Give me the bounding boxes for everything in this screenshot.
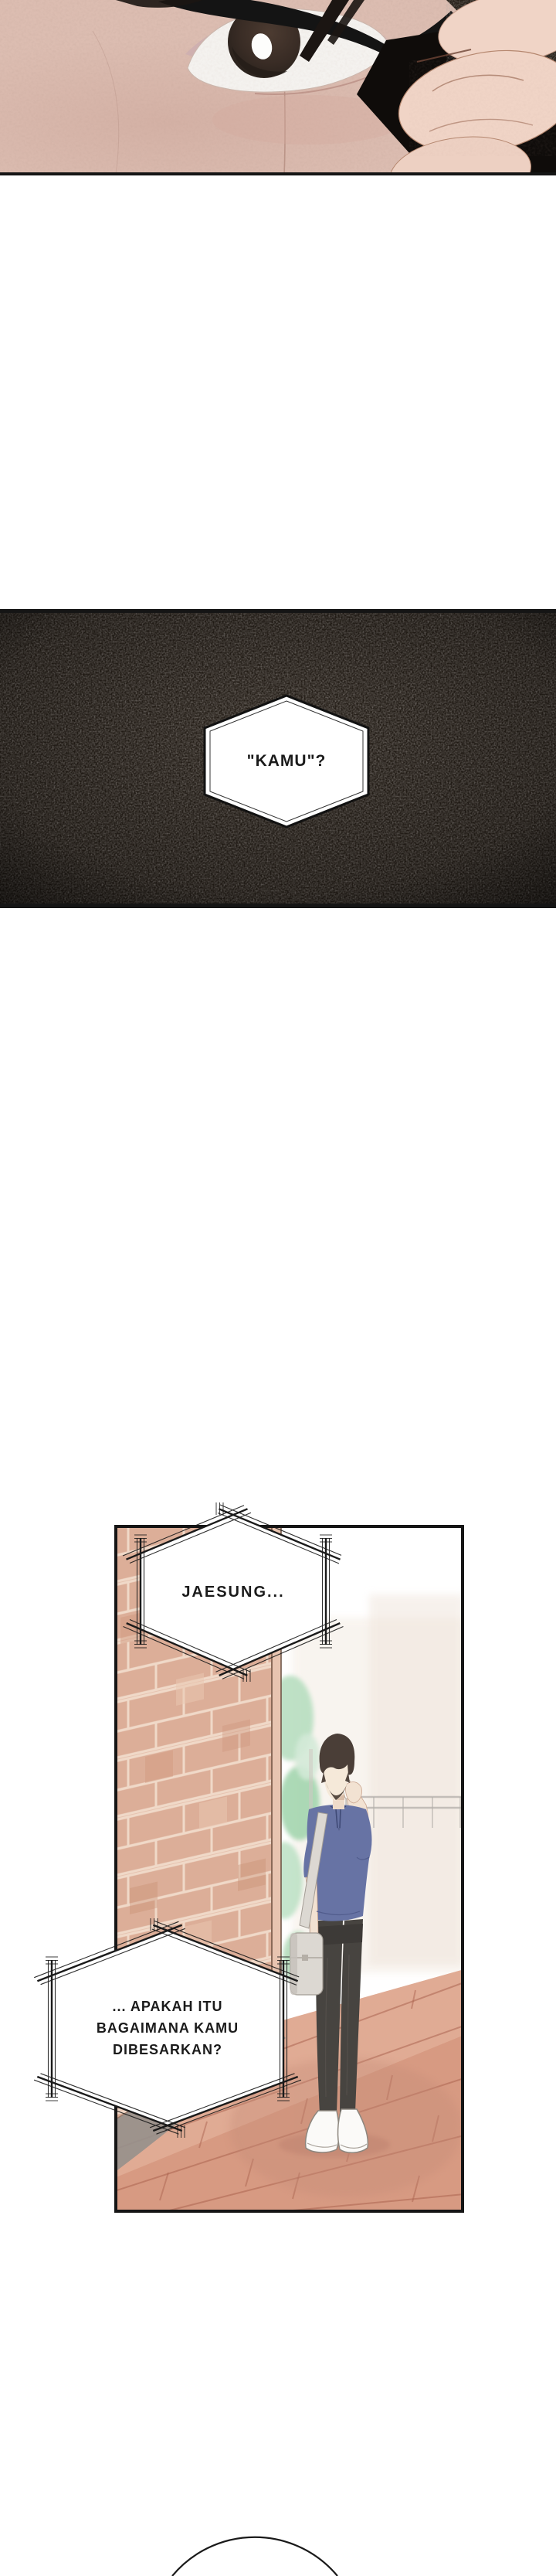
panel-bottom-border	[0, 172, 556, 175]
bubble-jaesung: JAESUNG...	[117, 1492, 349, 1693]
panel-dark-leather: "KAMU"?	[0, 609, 556, 908]
bubble-jaesung-text: JAESUNG...	[181, 1584, 284, 1601]
bubble-apakah-line3: DIBESARKAN?	[97, 2039, 239, 2060]
panel-next-arc	[0, 2527, 556, 2576]
bubble-apakah-line2: BAGAIMANA KAMU	[97, 2017, 239, 2039]
bubble-apakah-text: ... APAKAH ITU BAGAIMANA KAMU DIBESARKAN…	[97, 1996, 239, 2060]
bubble-apakah-line1: ... APAKAH ITU	[97, 1996, 239, 2017]
bubble-kamu-text: "KAMU"?	[247, 752, 327, 771]
next-panel-head-outline	[0, 2527, 556, 2576]
bubble-apakah: ... APAKAH ITU BAGAIMANA KAMU DIBESARKAN…	[29, 1907, 307, 2149]
eye-closeup-art	[0, 0, 556, 175]
comic-page: "KAMU"?	[0, 0, 556, 2576]
bubble-kamu: "KAMU"?	[202, 692, 371, 830]
panel-eye-closeup	[0, 0, 556, 175]
